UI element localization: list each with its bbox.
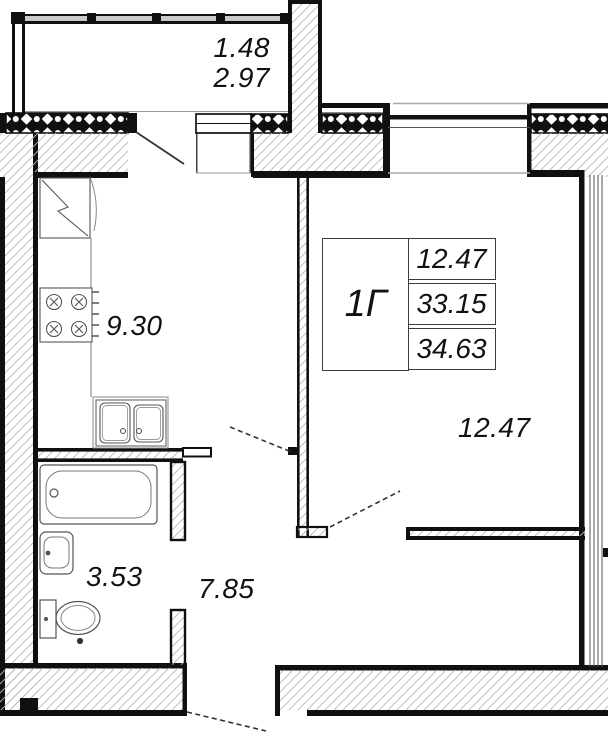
kitchen-balcony-window	[196, 114, 251, 173]
unit-area: 33.15	[408, 283, 496, 325]
kitchen-door-swing	[230, 427, 289, 451]
washbasin-icon	[40, 532, 73, 574]
floor-plan-drawing	[0, 0, 608, 734]
room-side-window	[590, 175, 602, 667]
unit-living-area: 12.47	[408, 238, 496, 280]
toilet-icon	[40, 600, 100, 644]
kitchen-sink-icon	[93, 397, 168, 448]
bathroom-area-label: 3.53	[86, 563, 143, 591]
balcony-area-label: 2.97	[178, 64, 270, 92]
kitchen-area-label: 9.30	[106, 312, 163, 340]
entrance-door-swing	[187, 712, 266, 731]
stove-icon	[40, 288, 99, 342]
hallway-area-label: 7.85	[198, 575, 255, 603]
unit-type-label: 1Г	[322, 238, 409, 371]
room-door-swing	[330, 491, 400, 527]
unit-total-area: 34.63	[408, 328, 496, 370]
floor-plan: 1.48 2.97 9.30 12.47 3.53 7.85 1Г 12.47 …	[0, 0, 608, 734]
unit-info-table: 1Г 12.47 33.15 34.63	[322, 238, 496, 371]
room-top-window	[388, 104, 530, 174]
fridge-icon	[40, 178, 90, 238]
balcony-dim-label: 1.48	[178, 34, 270, 62]
room-area-label: 12.47	[458, 414, 531, 442]
bathtub-icon	[40, 465, 157, 524]
